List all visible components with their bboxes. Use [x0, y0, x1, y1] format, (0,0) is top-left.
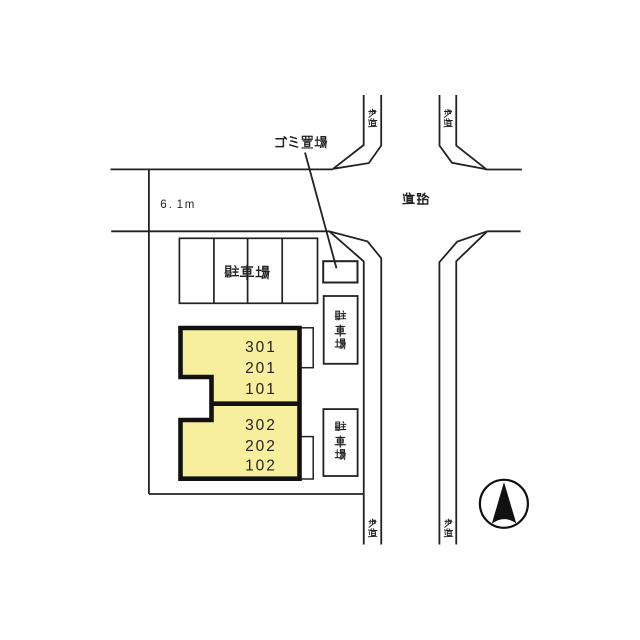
svg-text:101: 101	[245, 381, 277, 398]
svg-text:6: 6	[160, 199, 166, 211]
svg-text:m: m	[185, 199, 195, 211]
svg-text:.: .	[169, 199, 172, 211]
svg-text:202: 202	[245, 438, 277, 455]
svg-text:1: 1	[177, 199, 183, 211]
svg-text:102: 102	[245, 458, 277, 475]
svg-text:302: 302	[245, 417, 277, 434]
svg-text:301: 301	[245, 339, 277, 356]
svg-text:201: 201	[245, 360, 277, 377]
